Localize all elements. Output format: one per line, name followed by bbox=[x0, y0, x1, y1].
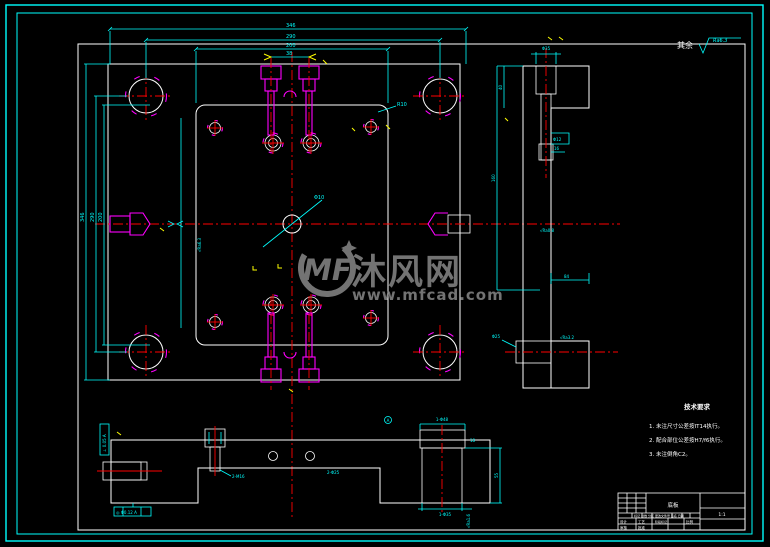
dim-rv-h2: 160 bbox=[491, 174, 496, 182]
side-section-view: Φ35 40 160 Φ12 16 84 Φ25 √Ra0.8 √Ra3.2 bbox=[491, 46, 618, 388]
dim-left-3: 200 bbox=[98, 212, 104, 222]
dim-top-1: 346 bbox=[286, 23, 296, 29]
dim-pin-t: 18 bbox=[470, 438, 476, 443]
tolerance-frame-left: ⊥ 0.05 A bbox=[102, 434, 107, 452]
watermark-logo: MF bbox=[303, 253, 352, 287]
dim-rv-d1: Φ12 bbox=[553, 137, 562, 142]
title-block-part-name: 底板 bbox=[667, 501, 679, 509]
dim-left-1: 346 bbox=[80, 212, 86, 222]
roughness-value: Ra6.3 bbox=[713, 38, 728, 44]
title-block: 底板 标记 处数 分区 更改文件号 签名 日期 设计 审核 工艺 批准 阶段标记… bbox=[618, 493, 745, 530]
dim-pin-top: 1-Φ48 bbox=[436, 417, 449, 422]
tolerance-frame-bottom: ◎ Φ0.12 A bbox=[116, 510, 137, 515]
plate-roughness-label: √Ra6.3 bbox=[197, 237, 202, 252]
title-block-scale: 1:1 bbox=[718, 512, 725, 518]
dim-rv-w: 84 bbox=[564, 274, 570, 279]
dim-pin-h: 55 bbox=[494, 472, 499, 478]
center-sprue-hole: Φ10 bbox=[263, 195, 324, 247]
dim-center-hole: Φ10 bbox=[314, 195, 324, 201]
bottom-section-view: 2-M16 2-Φ25 ⊥ 0.05 A ◎ Φ0.12 A bbox=[97, 424, 490, 516]
reference-ticks bbox=[117, 37, 563, 435]
watermark: MF 沐风网 www.mfcad.com bbox=[290, 231, 503, 304]
engineering-drawing: Φ10 R10 bbox=[0, 0, 770, 547]
title-block-process: 工艺 bbox=[638, 519, 646, 524]
dim-top-4: 38 bbox=[286, 51, 292, 57]
dim-rv-d2: 16 bbox=[554, 146, 560, 151]
tech-note-2: 2. 配合部位公差按H7/f6执行。 bbox=[649, 436, 726, 444]
surface-roughness-note: 其余 Ra6.3 bbox=[677, 38, 741, 53]
dim-rv-hole: Φ25 bbox=[492, 334, 501, 339]
technical-notes: 技术要求 1. 未注尺寸公差按IT14执行。 2. 配合部位公差按H7/f6执行… bbox=[649, 402, 726, 458]
title-block-checker: 审核 bbox=[620, 525, 628, 530]
title-block-row-labels: 标记 处数 分区 更改文件号 签名 日期 bbox=[634, 513, 684, 518]
title-block-stage: 阶段标记 bbox=[655, 519, 667, 524]
dim-bb-holes: 2-Φ25 bbox=[327, 470, 340, 475]
dim-rv-top: Φ35 bbox=[542, 46, 551, 51]
datum-icon: A bbox=[387, 418, 390, 423]
dim-top-2: 290 bbox=[286, 34, 296, 40]
dim-bb-screw: 2-M16 bbox=[232, 474, 245, 479]
roughness-icon: √Ra3.2 bbox=[560, 335, 575, 340]
title-block-scale-label: 比例 bbox=[686, 519, 694, 524]
guide-bush-detail: 1-Φ48 1-Φ35 55 18 √Ra1.6 A bbox=[385, 417, 503, 529]
title-block-approver: 批准 bbox=[638, 525, 646, 530]
roughness-icon: √Ra1.6 bbox=[466, 513, 471, 528]
dim-top-3: 200 bbox=[286, 43, 296, 49]
tech-note-3: 3. 未注倒角C2。 bbox=[649, 450, 691, 458]
cad-canvas: Φ10 R10 bbox=[0, 0, 770, 547]
ejector-pins-bottom bbox=[261, 296, 319, 390]
dim-pin-bottom: 1-Φ35 bbox=[439, 512, 452, 517]
roughness-prefix: 其余 bbox=[677, 40, 693, 50]
dim-rv-h1: 40 bbox=[498, 84, 503, 90]
dim-left-2: 290 bbox=[90, 212, 96, 222]
tech-note-1: 1. 未注尺寸公差按IT14执行。 bbox=[649, 422, 723, 430]
roughness-icon: √Ra0.8 bbox=[540, 228, 555, 233]
tech-notes-title: 技术要求 bbox=[684, 402, 711, 411]
dim-corner-radius: R10 bbox=[397, 102, 407, 108]
watermark-url: www.mfcad.com bbox=[352, 286, 504, 304]
title-block-designer: 设计 bbox=[620, 519, 628, 524]
